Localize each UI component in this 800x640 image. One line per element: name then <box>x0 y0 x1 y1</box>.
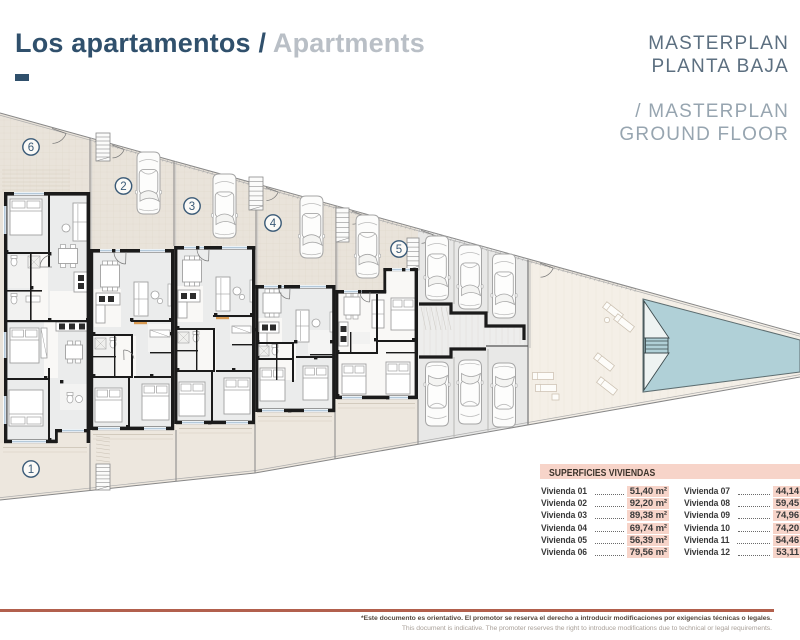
svg-text:1: 1 <box>28 464 34 476</box>
svg-text:3: 3 <box>189 201 195 213</box>
svg-text:5: 5 <box>396 244 402 256</box>
svg-text:4: 4 <box>270 218 277 230</box>
svg-text:6: 6 <box>28 142 34 154</box>
svg-text:2: 2 <box>120 181 126 193</box>
